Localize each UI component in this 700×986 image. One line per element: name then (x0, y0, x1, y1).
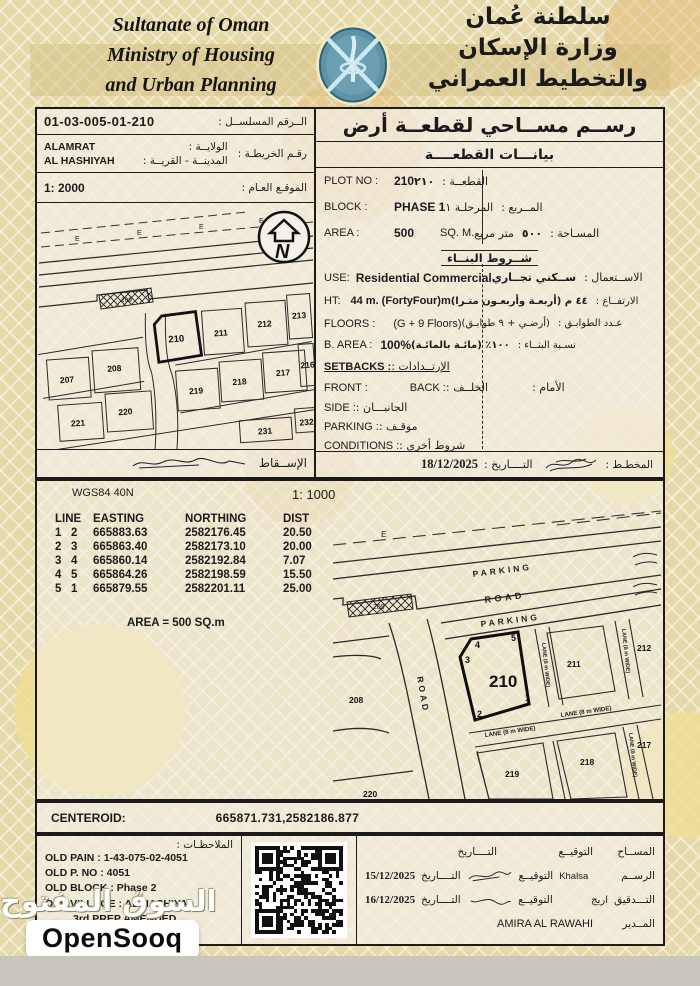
svg-text:4: 4 (475, 640, 480, 650)
serial-number-value: 01-03-005-01-210 (44, 114, 154, 129)
projection-bar: الإســقاط (37, 449, 314, 475)
old-pno-line: OLD P. NO : 4051 (45, 866, 233, 881)
draftsman-name: Khalsa (559, 871, 609, 882)
general-location-row: 1: 2000 الموقـع العـام : (37, 173, 314, 203)
parking-label-top: PARKING (472, 562, 532, 579)
notes-heading: الملاحظـات : (45, 839, 233, 851)
audit-signature-scribble (467, 893, 512, 907)
location-info-box: 01-03-005-01-210 الــرقم المسلســل : ALA… (35, 107, 316, 479)
built-area-label-ar: نسـبة البنــاء : (518, 340, 576, 351)
svg-text:218: 218 (232, 376, 247, 387)
ministry-title-arabic: سلطنة عُمان وزارة الإسكان والتخطيط العمر… (418, 2, 658, 94)
conditions-divider-line (482, 264, 483, 449)
centeroid-bar: CENTEROID: 665871.731,2582186.877 (35, 801, 665, 834)
area-label-ar: المسـاحة : (550, 227, 599, 240)
plot-210-number: 210 (489, 672, 517, 691)
serial-number-label: الــرقم المسلســل : (218, 116, 307, 128)
audit-signature-row: التـــدقيق اريج التوقيــع التــــاريخ 16… (365, 888, 655, 912)
surveyor-signature-row: المســاح التوقيــع التــــاريخ (365, 840, 655, 864)
audit-date: 16/12/2025 (365, 894, 415, 906)
built-area-label: B. AREA : (324, 339, 372, 351)
plot-210: 210 1 2 3 4 5 (460, 632, 530, 720)
svg-text:213: 213 (292, 310, 307, 321)
wilaya-label: الولايــة : (189, 141, 228, 153)
table-cell: 5 (55, 583, 71, 595)
opensooq-logo: OpenSooq (26, 920, 199, 959)
planner-signature-scribble (542, 456, 600, 474)
parking-row: PARKING : موقـف : (316, 417, 663, 436)
table-cell: 665879.55 (93, 583, 185, 595)
side-label-ar: الجانبـــان : (356, 401, 408, 414)
audit-role: التـــدقيق (614, 894, 655, 906)
qr-cell (242, 836, 357, 944)
area-label: AREA : (324, 227, 386, 239)
svg-text:221: 221 (71, 418, 86, 429)
plot-209-label: 209 (373, 604, 385, 611)
location-scale-value: 1: 2000 (44, 181, 85, 195)
setbacks-label-ar: الإرتــدادات : (391, 360, 450, 373)
plot-data-subtitle: بيانـــات القطعــــة (316, 142, 663, 168)
side-row: SIDE : الجانبـــان : (316, 398, 663, 417)
height-row: HT: 44 m. (FortyFour)m الارتفــاع : ٤٤ م… (316, 289, 663, 313)
svg-text:1: 1 (525, 693, 530, 703)
block-row: BLOCK : PHASE 1 المــربع : المرحلـة ١ (316, 194, 663, 220)
margin-scribbles (633, 553, 657, 595)
old-pain-line: OLD PAIN : 1-43-075-02-4051 (45, 851, 233, 866)
table-cell: 2582192.84 (185, 555, 283, 567)
use-value: Residential Commercial (356, 271, 492, 285)
date-bar: التــــاريخ : 18/12/2025 المخطـط : (316, 451, 663, 477)
manager-signature-row: المــدير AMIRA AL RAWAHI (365, 912, 655, 936)
svg-text:208: 208 (107, 363, 122, 374)
north-arrow-icon: N (259, 212, 309, 263)
plot-no-label: PLOT NO : (324, 175, 386, 187)
svg-text:211: 211 (567, 659, 581, 669)
table-cell: 3 (55, 555, 71, 567)
village-value: AL HASHIYAH (44, 155, 115, 167)
svg-text:5: 5 (511, 633, 516, 643)
powerline-e-mark: E (381, 529, 387, 539)
header-ar-line2: وزارة الإسكان (418, 33, 658, 64)
svg-text:3: 3 (465, 655, 470, 665)
planner-label: المخطـط : (606, 459, 654, 471)
block-label: BLOCK : (324, 201, 386, 213)
powerline-dashed (333, 511, 661, 545)
scanned-land-survey-document: Sultanate of Oman Ministry of Housing an… (0, 0, 700, 986)
substation-209: 209 (347, 594, 413, 617)
table-cell: 2582176.45 (185, 527, 283, 539)
svg-text:208: 208 (349, 695, 363, 705)
signature-label: التوقيــع (503, 846, 593, 858)
survey-map-box: E 209 PARKING ROAD PARKING (35, 479, 665, 801)
neighbor-plot-numbers: 208 211 212 217 218 219 220 (349, 643, 651, 799)
wilaya-value: ALAMRAT (44, 141, 115, 153)
city-village-label: المدينــة - القريــة : (143, 155, 228, 167)
svg-text:E: E (75, 236, 80, 243)
draftsman-signature-scribble (467, 869, 513, 883)
svg-text:220: 220 (118, 406, 133, 417)
date-value: 18/12/2025 (421, 457, 478, 472)
parking-label-bottom: PARKING (480, 612, 540, 629)
floors-value: (G + 9 Floors) (393, 318, 461, 330)
table-cell: 665863.40 (93, 541, 185, 553)
block-value-ar: المرحلـة ١ (445, 201, 493, 214)
overview-site-map: E E E E 209 (37, 203, 314, 449)
svg-text:218: 218 (580, 757, 594, 767)
svg-text:217: 217 (276, 367, 291, 378)
table-cell: 2 (55, 541, 71, 553)
road-label: ROAD (484, 590, 525, 605)
table-cell: 15.50 (283, 569, 329, 581)
svg-text:207: 207 (60, 374, 75, 385)
map-number-row: ALAMRAT AL HASHIYAH الولايــة : المدينــ… (37, 135, 314, 173)
area-value-ar: ٥٠٠ (522, 227, 542, 240)
plot-no-value: 210 (394, 174, 414, 188)
plot-data-box: رســم مســاحي لقطعــة أرض بيانـــات القط… (314, 107, 665, 479)
header-en-line1: Sultanate of Oman (58, 10, 324, 40)
datum-label: WGS84 40N (72, 487, 134, 499)
block-label-ar: المــربع : (501, 201, 542, 214)
setbacks-label: SETBACKS : (324, 361, 391, 373)
area-value: 500 (394, 226, 414, 240)
draftsman-date: 15/12/2025 (365, 870, 415, 882)
date-label: التــــاريخ (457, 846, 497, 858)
map-number-label: رقـم الخريطـة : (238, 148, 307, 160)
svg-text:220: 220 (363, 789, 377, 799)
parking-label-ar: موقـف : (379, 420, 418, 433)
substation-209: 209 (99, 288, 153, 309)
centeroid-value: 665871.731,2582186.877 (216, 811, 359, 825)
surveyor-role: المســاح (599, 846, 655, 858)
table-cell: 2582173.10 (185, 541, 283, 553)
svg-text:2: 2 (477, 709, 482, 719)
projection-label: الإســقاط (259, 456, 307, 470)
table-cell: 5 (71, 569, 93, 581)
ministry-title-english: Sultanate of Oman Ministry of Housing an… (58, 10, 324, 100)
col-northing: NORTHING (185, 513, 283, 525)
data-divider-line (482, 170, 483, 244)
table-cell: 4 (55, 569, 71, 581)
use-label-ar: الاســتعمال : (584, 271, 643, 284)
svg-text:LANE (8 m WIDE): LANE (8 m WIDE) (560, 705, 612, 719)
svg-text:212: 212 (257, 318, 272, 329)
survey-scale: 1: 1000 (292, 487, 335, 502)
oman-national-emblem (315, 24, 391, 106)
floors-value-ar: (أرضـي + ٩ طوابـق) (462, 318, 550, 329)
table-cell: 2582198.59 (185, 569, 283, 581)
built-area-row: B. AREA : 100% نسـبة البنــاء : ١٠٠٪ (ما… (316, 334, 663, 356)
side-label: SIDE : (324, 402, 356, 414)
table-cell: 4 (71, 555, 93, 567)
area-unit-ar: متر مربع (474, 227, 514, 240)
photo-background-edge (0, 956, 700, 986)
parking-label: PARKING : (324, 421, 379, 433)
svg-text:217: 217 (637, 740, 651, 750)
table-cell: 25.00 (283, 583, 329, 595)
signatures-cell: المســاح التوقيــع التــــاريخ الرســم K… (357, 836, 663, 944)
built-area-value-ar: ١٠٠٪ (مائـة بالمائـة) (411, 340, 510, 351)
draftsman-role: الرســم (615, 870, 655, 882)
signature-label: التوقيــع (518, 894, 553, 906)
svg-text:219: 219 (505, 769, 519, 779)
svg-text:E: E (199, 224, 204, 231)
svg-text:210: 210 (168, 333, 185, 345)
road-label-vertical: ROAD (415, 676, 431, 714)
built-area-value: 100% (380, 338, 411, 352)
serial-number-row: 01-03-005-01-210 الــرقم المسلســل : (37, 109, 314, 135)
signature-label: التوقيــع (519, 870, 554, 882)
area-row: AREA : 500 SQ. M. المسـاحة : ٥٠٠ متر مرب… (316, 220, 663, 246)
table-cell: 1 (55, 527, 71, 539)
area-summary: AREA = 500 SQ.m (127, 617, 225, 629)
svg-text:N: N (275, 241, 290, 263)
table-cell: 665883.63 (93, 527, 185, 539)
floors-label-ar: عـدد الطوابـق : (558, 318, 622, 329)
floors-label: FLOORS : (324, 318, 375, 330)
floors-row: FLOORS : (G + 9 Floors) عـدد الطوابـق : … (316, 313, 663, 334)
height-label-ar: الارتفــاع : (596, 296, 639, 307)
back-label: BACK : (410, 382, 446, 394)
svg-text:232: 232 (299, 417, 314, 428)
svg-text:LANE (8 m WIDE): LANE (8 m WIDE) (620, 629, 631, 674)
centeroid-label: CENTEROID: (51, 811, 126, 825)
front-label: FRONT : (324, 382, 368, 394)
area-unit: SQ. M. (440, 227, 474, 239)
street-labels: PARKING ROAD PARKING (472, 562, 540, 629)
general-location-label: الموقـع العـام : (242, 182, 307, 194)
height-label: HT: (324, 295, 341, 307)
qr-code (251, 842, 347, 938)
use-label: USE: (324, 272, 350, 284)
plot-number-labels: 207 208 210 211 212 213 216 217 218 219 … (56, 310, 314, 449)
header-ar-line1: سلطنة عُمان (418, 2, 658, 33)
plot-209-label: 209 (121, 297, 132, 304)
table-cell: 2582201.11 (185, 583, 283, 595)
table-cell: 7.07 (283, 555, 329, 567)
table-cell: 665864.26 (93, 569, 185, 581)
svg-text:216: 216 (300, 359, 314, 370)
vertical-road-lines (333, 619, 465, 799)
manager-role: المــدير (599, 918, 655, 930)
front-back-row: FRONT : BACK : الأمام : الخلــف : (316, 377, 663, 398)
opensooq-arabic-watermark: السوق المفتوح (0, 884, 217, 918)
conditions-label: CONDITIONS : (324, 440, 399, 452)
table-cell: 3 (71, 541, 93, 553)
col-dist: DIST (283, 513, 329, 525)
powerline-e-marks: E E E E (75, 218, 264, 243)
table-cell: 20.50 (283, 527, 329, 539)
header-ar-line3: والتخطيط العمراني (418, 64, 658, 95)
manager-name: AMIRA AL RAWAHI (497, 918, 593, 930)
header-en-line3: and Urban Planning (58, 70, 324, 100)
use-row: USE: Residential Commercial الاســتعمال … (316, 266, 663, 289)
col-easting: EASTING (93, 513, 185, 525)
date-label: التــــاريخ (421, 894, 461, 906)
projection-signature-scribble (129, 456, 249, 470)
svg-text:212: 212 (637, 643, 651, 653)
header-en-line2: Ministry of Housing (58, 40, 324, 70)
table-cell: 20.00 (283, 541, 329, 553)
svg-text:231: 231 (258, 426, 273, 437)
svg-text:219: 219 (189, 385, 204, 396)
plot-no-value-ar: ٢١٠ (414, 175, 434, 188)
plot-no-row: PLOT NO : 210 القطعــة : ٢١٠ (316, 168, 663, 194)
height-value-ar: ٤٤ م (أربعـة وأربعـون متـرا) (451, 296, 588, 307)
setbacks-row: SETBACKS : الإرتــدادات : (316, 356, 663, 377)
table-cell: 1 (71, 583, 93, 595)
block-value: PHASE 1 (394, 200, 445, 214)
svg-text:211: 211 (214, 327, 229, 338)
col-line: LINE (55, 513, 71, 525)
coordinate-table: LINE EASTING NORTHING DIST 12665883.6325… (55, 513, 329, 595)
table-cell: 2 (71, 527, 93, 539)
audit-name: اريج (559, 895, 608, 906)
date-label: التــــاريخ (421, 870, 461, 882)
draftsman-signature-row: الرســم Khalsa التوقيــع التــــاريخ 15/… (365, 864, 655, 888)
table-cell: 665860.14 (93, 555, 185, 567)
svg-text:E: E (137, 230, 142, 237)
overview-map-drawing: E E E E 209 (37, 203, 314, 449)
date-label: التــــاريخ : (484, 458, 533, 471)
building-conditions-header: شــروط البنــاء (316, 250, 663, 266)
document-title: رســم مســاحي لقطعــة أرض (316, 109, 663, 142)
front-label-ar: الأمام : (532, 381, 565, 394)
use-value-ar: ســكني تجــاري (492, 271, 576, 284)
height-value: 44 m. (FortyFour)m (351, 295, 451, 307)
